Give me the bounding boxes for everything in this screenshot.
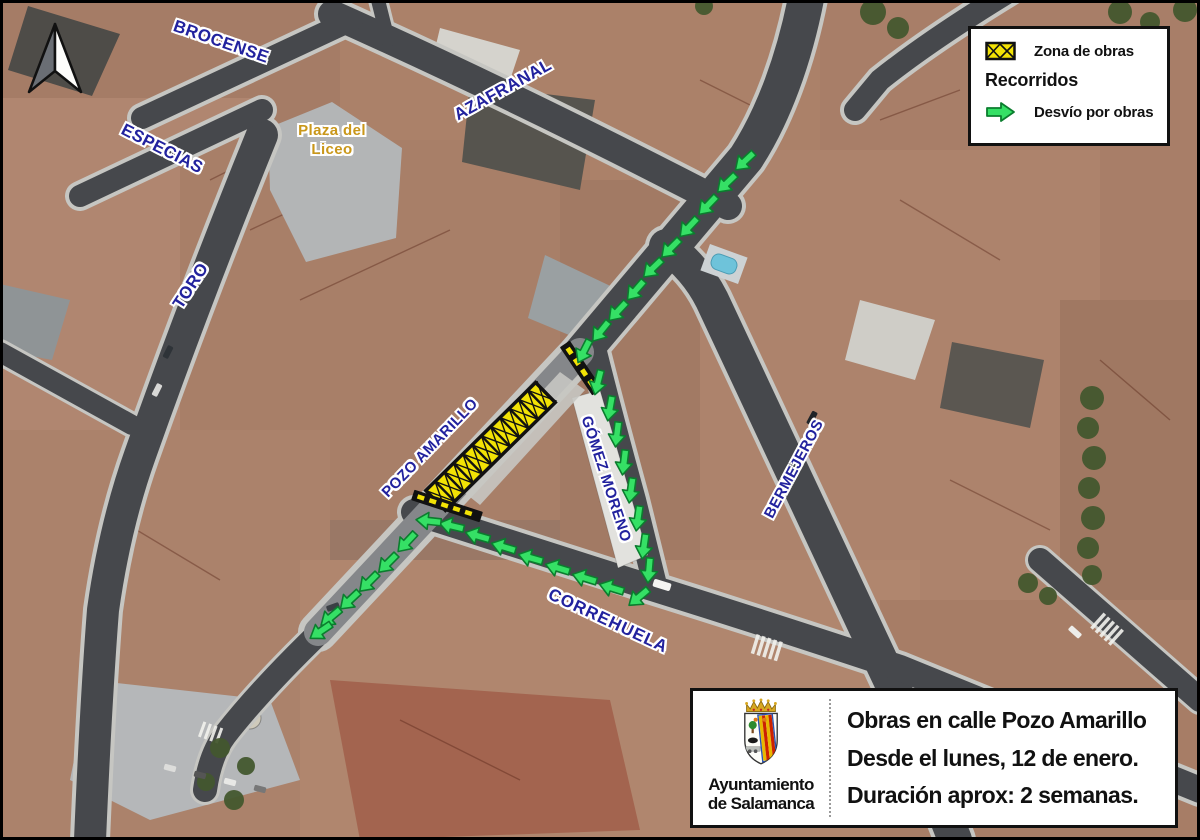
work-zone-swatch-icon — [985, 41, 1016, 61]
org-name-line2: de Salamanca — [708, 794, 814, 813]
plaza-liceo-line1: Plaza del — [298, 121, 366, 140]
legend-detour-label: Desvío por obras — [1034, 104, 1153, 121]
legend-routes-heading: Recorridos — [985, 70, 1167, 91]
info-title-line3: Duración aprox: 2 semanas. — [847, 782, 1171, 809]
info-panel: Ayuntamiento de Salamanca Obras en calle… — [690, 688, 1178, 828]
legend-row-work-zone: Zona de obras — [985, 41, 1167, 61]
salamanca-coat-of-arms-icon — [734, 697, 788, 773]
map-canvas: BROCENSE ESPECIAS TORO AZAFRANAL POZO AM… — [0, 0, 1200, 840]
info-title-line1: Obras en calle Pozo Amarillo — [847, 707, 1171, 734]
plaza-liceo-line2: Liceo — [298, 140, 366, 159]
info-org-section: Ayuntamiento de Salamanca — [693, 691, 829, 825]
detour-arrow-icon — [985, 101, 1016, 123]
place-label-plaza-del-liceo: Plaza del Liceo — [298, 121, 366, 159]
legend-row-detour: Desvío por obras — [985, 101, 1167, 123]
legend-work-zone-label: Zona de obras — [1034, 43, 1134, 60]
legend-panel: Zona de obras Recorridos Desvío por obra… — [968, 26, 1170, 146]
info-title-line2: Desde el lunes, 12 de enero. — [847, 745, 1171, 772]
info-title-section: Obras en calle Pozo Amarillo Desde el lu… — [831, 691, 1175, 825]
org-name-line1: Ayuntamiento — [708, 775, 814, 794]
